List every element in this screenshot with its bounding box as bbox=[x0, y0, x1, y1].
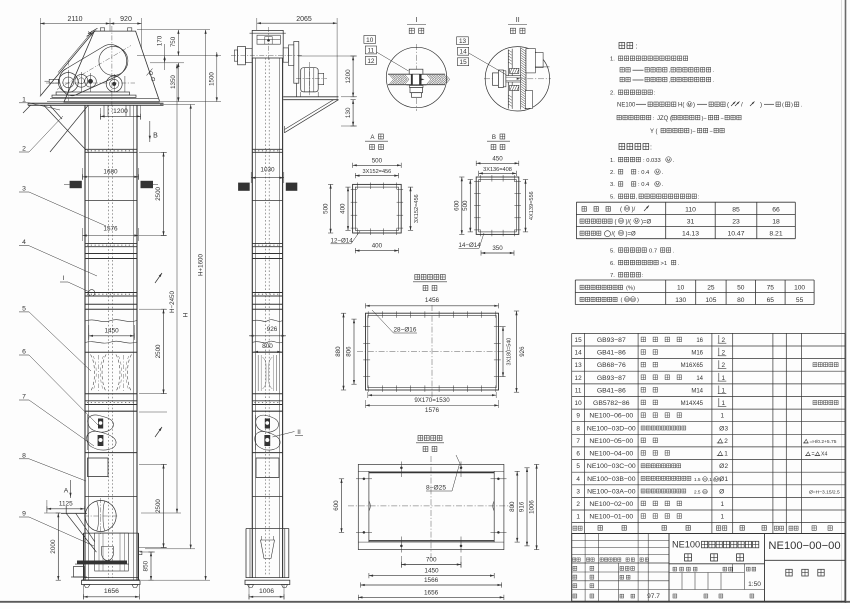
svg-text:,: , bbox=[636, 195, 637, 201]
svg-text:850: 850 bbox=[143, 560, 150, 571]
svg-text:5.: 5. bbox=[610, 195, 615, 201]
svg-text:13: 13 bbox=[575, 362, 583, 369]
svg-text:M14: M14 bbox=[691, 389, 703, 395]
svg-text:400: 400 bbox=[340, 203, 347, 214]
svg-text:M: M bbox=[656, 170, 660, 176]
svg-text:2000: 2000 bbox=[50, 539, 57, 554]
svg-text:JZQ (: JZQ ( bbox=[657, 116, 672, 122]
svg-text:1576: 1576 bbox=[425, 407, 440, 414]
svg-text:9X170=1530: 9X170=1530 bbox=[414, 397, 450, 404]
svg-text:3X180=540: 3X180=540 bbox=[507, 338, 513, 366]
svg-text:800: 800 bbox=[262, 343, 273, 350]
svg-text:)/(: )/( bbox=[626, 219, 632, 225]
svg-text:3: 3 bbox=[576, 488, 580, 495]
svg-text:10: 10 bbox=[677, 285, 685, 292]
svg-text:=H/0.2+5.75: =H/0.2+5.75 bbox=[810, 439, 837, 445]
svg-text:80: 80 bbox=[737, 297, 745, 304]
svg-text:110: 110 bbox=[685, 206, 696, 213]
svg-text:M: M bbox=[715, 476, 718, 481]
svg-text:NE100−05−00: NE100−05−00 bbox=[589, 438, 633, 445]
svg-text:,: , bbox=[669, 68, 670, 74]
svg-text:6.: 6. bbox=[610, 261, 615, 267]
svg-text:: 0.033: : 0.033 bbox=[643, 158, 661, 164]
svg-text:31: 31 bbox=[687, 219, 695, 226]
svg-text:NE100−03C−00: NE100−03C−00 bbox=[587, 463, 636, 470]
svg-text:Ø=H−3.15/2.5: Ø=H−3.15/2.5 bbox=[809, 489, 840, 495]
svg-text:A: A bbox=[64, 488, 69, 495]
svg-text:130: 130 bbox=[675, 297, 686, 304]
svg-text:2.: 2. bbox=[610, 170, 615, 176]
svg-text:6: 6 bbox=[22, 349, 26, 356]
svg-text:1006: 1006 bbox=[259, 588, 274, 595]
svg-text:M: M bbox=[667, 157, 671, 163]
svg-text:B: B bbox=[153, 133, 158, 140]
svg-text:55: 55 bbox=[796, 297, 804, 304]
svg-text:1450: 1450 bbox=[424, 568, 439, 575]
svg-text:920: 920 bbox=[120, 16, 132, 23]
svg-text:2065: 2065 bbox=[296, 16, 312, 23]
svg-text:.: . bbox=[713, 68, 714, 74]
svg-text:): ) bbox=[791, 103, 793, 109]
svg-text:18: 18 bbox=[772, 219, 780, 226]
svg-text::: : bbox=[654, 91, 655, 97]
svg-text:1680: 1680 bbox=[103, 168, 118, 175]
svg-text:2: 2 bbox=[22, 146, 26, 153]
svg-text:M: M bbox=[635, 219, 639, 224]
svg-text:H(: H( bbox=[678, 103, 684, 109]
svg-text::: : bbox=[650, 145, 652, 152]
svg-text:7.: 7. bbox=[610, 273, 615, 279]
svg-text:NE100−00−00: NE100−00−00 bbox=[768, 540, 840, 552]
svg-text:14: 14 bbox=[575, 350, 583, 357]
svg-text:1350: 1350 bbox=[170, 75, 177, 89]
svg-text:NE100−06−00: NE100−06−00 bbox=[589, 413, 633, 420]
svg-text:1656: 1656 bbox=[104, 588, 119, 595]
svg-text:600: 600 bbox=[333, 500, 340, 511]
svg-text:12: 12 bbox=[575, 375, 583, 382]
svg-text:1: 1 bbox=[724, 451, 728, 458]
svg-text:105: 105 bbox=[705, 297, 716, 304]
svg-text:1450: 1450 bbox=[104, 327, 119, 334]
svg-text:23: 23 bbox=[732, 219, 740, 226]
svg-text:16: 16 bbox=[696, 338, 703, 344]
svg-text:1566: 1566 bbox=[424, 577, 439, 584]
svg-text:1.: 1. bbox=[610, 57, 615, 63]
svg-text:II: II bbox=[297, 429, 301, 436]
svg-text:11: 11 bbox=[575, 388, 582, 395]
svg-text:2500: 2500 bbox=[155, 499, 162, 513]
svg-text:66: 66 bbox=[772, 206, 780, 213]
svg-text:=: = bbox=[812, 452, 815, 458]
svg-text:1576: 1576 bbox=[103, 226, 118, 233]
svg-text:II: II bbox=[516, 17, 520, 24]
svg-text:NE100: NE100 bbox=[617, 103, 636, 109]
svg-text:2.: 2. bbox=[610, 91, 615, 97]
svg-text:5: 5 bbox=[576, 463, 580, 470]
svg-text:H+1600: H+1600 bbox=[197, 254, 204, 276]
svg-text:1: 1 bbox=[721, 501, 725, 508]
svg-text:8.21: 8.21 bbox=[769, 231, 782, 238]
svg-text:M: M bbox=[625, 206, 629, 212]
svg-text:2: 2 bbox=[576, 501, 580, 508]
svg-text:): ) bbox=[760, 102, 762, 109]
svg-text:100: 100 bbox=[794, 285, 805, 292]
svg-text:1.5: 1.5 bbox=[694, 477, 701, 482]
svg-text:3.: 3. bbox=[610, 182, 615, 188]
svg-text:NE100: NE100 bbox=[672, 540, 700, 550]
svg-text:880: 880 bbox=[335, 346, 342, 357]
svg-text:97.7: 97.7 bbox=[647, 593, 660, 600]
svg-text:(: ( bbox=[621, 298, 623, 304]
svg-text:75: 75 bbox=[767, 285, 775, 292]
svg-text:3X152=456: 3X152=456 bbox=[414, 194, 420, 223]
svg-text:1006: 1006 bbox=[528, 500, 535, 514]
svg-text:GB41−86: GB41−86 bbox=[597, 350, 626, 357]
svg-text:B: B bbox=[492, 134, 496, 141]
svg-text:)−: )− bbox=[702, 116, 708, 122]
svg-text:28−Ø16: 28−Ø16 bbox=[394, 327, 417, 334]
svg-text:.: . bbox=[678, 261, 680, 267]
svg-text:/: / bbox=[741, 102, 743, 109]
svg-text:M: M bbox=[703, 476, 706, 481]
svg-text:2110: 2110 bbox=[67, 16, 82, 23]
svg-text:(%): (%) bbox=[626, 286, 635, 292]
svg-text:4X139=556: 4X139=556 bbox=[529, 191, 535, 220]
svg-text:916: 916 bbox=[519, 501, 526, 512]
svg-text:(: ( bbox=[615, 219, 617, 225]
svg-text:5: 5 bbox=[22, 305, 26, 312]
svg-text:Ø: Ø bbox=[719, 425, 724, 432]
svg-text:4: 4 bbox=[576, 476, 580, 483]
svg-text:.: . bbox=[713, 78, 714, 84]
svg-text:14.13: 14.13 bbox=[682, 231, 699, 238]
svg-text::: : bbox=[698, 195, 699, 201]
svg-text:25: 25 bbox=[707, 285, 715, 292]
svg-text::: : bbox=[636, 44, 638, 51]
svg-text:130: 130 bbox=[345, 107, 352, 118]
svg-text:10.47: 10.47 bbox=[727, 231, 744, 238]
svg-text:NE100−03B−00: NE100−03B−00 bbox=[587, 476, 636, 483]
svg-text:14: 14 bbox=[696, 376, 703, 382]
svg-text:GB41−86: GB41−86 bbox=[597, 388, 626, 395]
svg-text:1456: 1456 bbox=[425, 297, 440, 304]
svg-text:): ) bbox=[693, 103, 695, 109]
svg-text:3: 3 bbox=[22, 186, 26, 193]
svg-text:NE100−01−00: NE100−01−00 bbox=[589, 514, 633, 521]
svg-text:9: 9 bbox=[576, 413, 580, 420]
svg-text:1030: 1030 bbox=[260, 166, 275, 173]
svg-text:Ø: Ø bbox=[719, 488, 724, 495]
svg-text:H: H bbox=[182, 312, 189, 317]
svg-text:M: M bbox=[619, 219, 623, 224]
svg-text:: 0.4: : 0.4 bbox=[638, 182, 650, 188]
svg-text:0.7: 0.7 bbox=[649, 248, 657, 254]
svg-text:GB68−76: GB68−76 bbox=[597, 362, 626, 369]
svg-text:/(: /( bbox=[612, 231, 616, 237]
svg-text:1: 1 bbox=[721, 514, 725, 521]
svg-text:8: 8 bbox=[576, 425, 580, 432]
svg-text:500: 500 bbox=[322, 203, 329, 214]
svg-text:M16X65: M16X65 bbox=[681, 363, 704, 369]
svg-text:6: 6 bbox=[576, 451, 580, 458]
svg-text:14: 14 bbox=[460, 49, 468, 56]
svg-text:)/: )/ bbox=[632, 206, 636, 213]
svg-text:NE100−03D−00: NE100−03D−00 bbox=[587, 425, 636, 432]
svg-text:750: 750 bbox=[170, 36, 177, 47]
svg-text:350: 350 bbox=[492, 245, 503, 252]
svg-text:M14X45: M14X45 bbox=[681, 401, 704, 407]
svg-text:)−: )− bbox=[691, 129, 697, 135]
svg-text:1: 1 bbox=[576, 514, 580, 521]
svg-text:10: 10 bbox=[366, 37, 374, 44]
svg-text:,: , bbox=[669, 78, 670, 84]
svg-text:Y (: Y ( bbox=[650, 129, 658, 135]
svg-text:500: 500 bbox=[372, 157, 383, 164]
svg-text:10: 10 bbox=[575, 400, 583, 407]
svg-text:3: 3 bbox=[725, 425, 729, 432]
svg-text:50: 50 bbox=[737, 285, 745, 292]
svg-text:NE100−02−00: NE100−02−00 bbox=[589, 501, 633, 508]
svg-text:NE100−03A−00: NE100−03A−00 bbox=[587, 488, 636, 495]
svg-text:)=Ø: )=Ø bbox=[641, 219, 652, 225]
svg-text:M: M bbox=[631, 297, 635, 302]
svg-text:1200: 1200 bbox=[113, 108, 128, 115]
svg-text:2: 2 bbox=[724, 438, 728, 445]
svg-text:.: . bbox=[673, 248, 675, 254]
svg-text:M: M bbox=[688, 102, 692, 107]
svg-text:2500: 2500 bbox=[155, 186, 162, 200]
svg-text:8: 8 bbox=[22, 452, 26, 459]
svg-text:14−Ø14: 14−Ø14 bbox=[459, 242, 482, 249]
svg-text:2.5: 2.5 bbox=[694, 489, 701, 494]
svg-text:GB93−87: GB93−87 bbox=[597, 337, 626, 344]
svg-text:5.: 5. bbox=[610, 248, 615, 254]
svg-text:1125: 1125 bbox=[59, 501, 73, 508]
svg-text:M: M bbox=[656, 182, 660, 188]
svg-text:450: 450 bbox=[492, 155, 503, 162]
svg-text:806: 806 bbox=[346, 346, 353, 357]
svg-text:15: 15 bbox=[575, 337, 583, 344]
svg-text:500: 500 bbox=[462, 200, 469, 211]
svg-text:GB93−87: GB93−87 bbox=[597, 375, 626, 382]
svg-text:800: 800 bbox=[509, 501, 516, 512]
svg-text:13: 13 bbox=[459, 38, 467, 45]
svg-text:1:50: 1:50 bbox=[748, 581, 761, 588]
svg-text:926: 926 bbox=[519, 346, 526, 357]
svg-text::: : bbox=[642, 273, 643, 279]
svg-text:1: 1 bbox=[721, 413, 725, 420]
svg-text:7: 7 bbox=[576, 438, 580, 445]
svg-text::: : bbox=[653, 116, 655, 122]
svg-text:M: M bbox=[703, 489, 706, 494]
svg-text:2500: 2500 bbox=[155, 344, 162, 358]
svg-text:7: 7 bbox=[22, 394, 26, 401]
svg-text:X4: X4 bbox=[821, 452, 827, 458]
svg-text:3X136=408: 3X136=408 bbox=[483, 167, 512, 173]
svg-text:12: 12 bbox=[367, 58, 375, 65]
svg-text:4: 4 bbox=[22, 239, 26, 246]
svg-text:M16: M16 bbox=[691, 351, 703, 357]
svg-text:NE100−04−00: NE100−04−00 bbox=[589, 451, 633, 458]
svg-text:65: 65 bbox=[767, 297, 775, 304]
svg-text:1500: 1500 bbox=[209, 72, 216, 86]
svg-text:926: 926 bbox=[267, 326, 278, 333]
svg-text:11: 11 bbox=[368, 47, 375, 54]
svg-text:I: I bbox=[63, 275, 65, 282]
svg-text:): ) bbox=[637, 298, 639, 304]
svg-text:15: 15 bbox=[460, 59, 468, 66]
svg-text:GB5782−86: GB5782−86 bbox=[593, 400, 630, 407]
svg-text:400: 400 bbox=[372, 242, 383, 249]
svg-text:(: ( bbox=[782, 103, 784, 109]
svg-text:600: 600 bbox=[454, 200, 461, 211]
svg-text:170: 170 bbox=[156, 35, 163, 46]
svg-text:1: 1 bbox=[22, 96, 26, 103]
svg-text:8−Ø25: 8−Ø25 bbox=[426, 485, 446, 492]
svg-text:12−Ø14: 12−Ø14 bbox=[331, 238, 354, 245]
svg-text:: 0.4: : 0.4 bbox=[638, 170, 650, 176]
svg-text:1.: 1. bbox=[610, 158, 615, 164]
svg-text:)=Ø: )=Ø bbox=[626, 231, 637, 237]
svg-text:2: 2 bbox=[725, 463, 729, 470]
svg-text:1656: 1656 bbox=[424, 589, 439, 596]
svg-text:85: 85 bbox=[732, 206, 740, 213]
svg-text:700: 700 bbox=[426, 557, 437, 564]
svg-text:H−2450: H−2450 bbox=[169, 291, 176, 313]
svg-text:9: 9 bbox=[22, 511, 26, 518]
svg-text:M: M bbox=[625, 297, 629, 302]
svg-text:Ø: Ø bbox=[719, 463, 724, 470]
svg-text:I: I bbox=[416, 17, 418, 24]
svg-text:>1: >1 bbox=[661, 261, 668, 267]
svg-text:1: 1 bbox=[725, 476, 729, 483]
svg-text:3X152=456: 3X152=456 bbox=[363, 169, 392, 175]
svg-text:M: M bbox=[619, 231, 623, 236]
svg-text:1200: 1200 bbox=[345, 69, 352, 84]
